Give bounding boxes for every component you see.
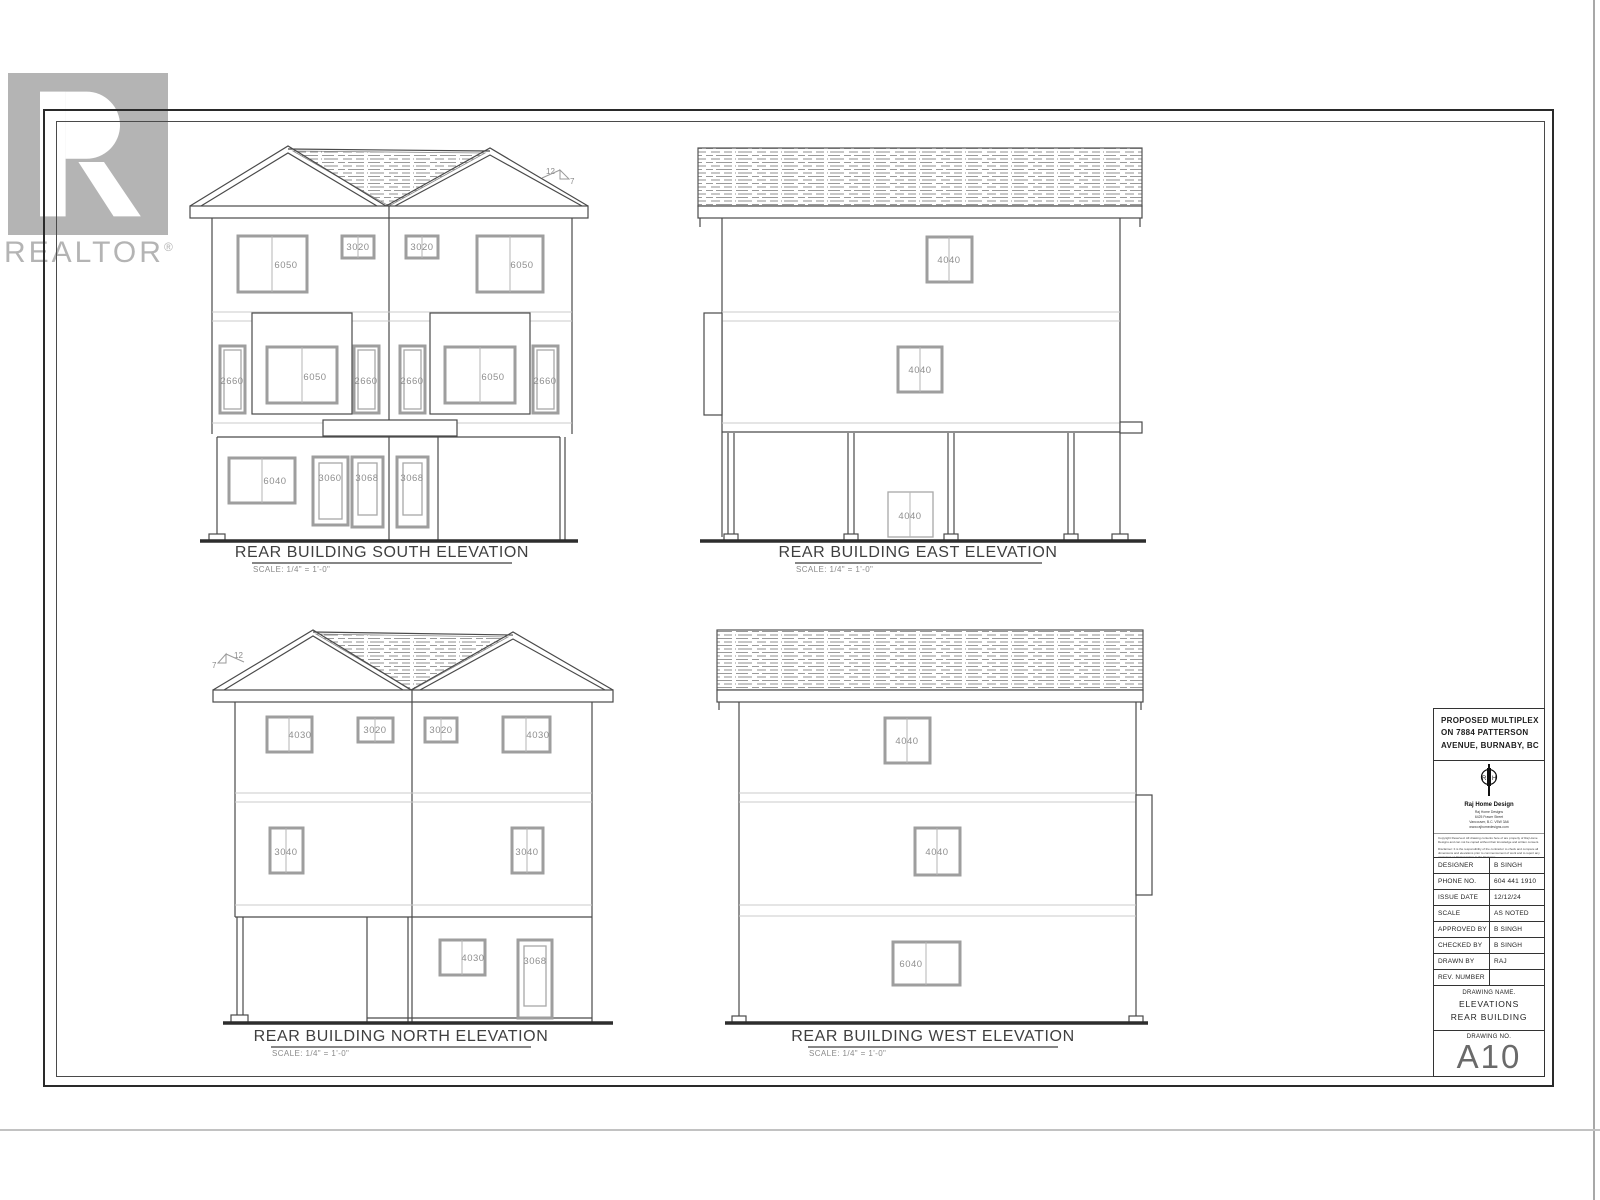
field-value: AS NOTED <box>1489 906 1544 921</box>
east-scale-note: SCALE: 1/4" = 1'-0" <box>796 565 873 574</box>
window-6050: 6050 <box>445 347 515 403</box>
south-elevation: 12 7 <box>190 146 588 574</box>
field-label: PHONE NO. <box>1434 874 1489 889</box>
window-6040: 6040 <box>893 942 960 985</box>
field-value <box>1489 970 1544 985</box>
window-label: 4040 <box>925 847 948 858</box>
project-line: PROPOSED MULTIPLEX <box>1441 715 1539 727</box>
window-label: 2660 <box>400 376 423 387</box>
drawing-name-line: ELEVATIONS <box>1434 999 1544 1009</box>
window-3020: 3020 <box>342 236 374 258</box>
field-row: DESIGNER B SINGH <box>1434 858 1544 874</box>
svg-text:H: H <box>1492 776 1496 782</box>
window-6050: 6050 <box>267 347 337 403</box>
north-title: REAR BUILDING NORTH ELEVATION <box>254 1028 549 1045</box>
fine-print: Copyright Reserved. All drawing contents… <box>1434 833 1544 858</box>
window-6050: 6050 <box>477 236 543 292</box>
field-row: REV. NUMBER <box>1434 970 1544 986</box>
drawing-number: A10 <box>1434 1040 1544 1075</box>
window-label: 3060 <box>318 473 341 484</box>
window-3020: 3020 <box>406 236 438 258</box>
window-label: 6040 <box>263 476 286 487</box>
window-6050: 6050 <box>238 236 307 292</box>
window-2660: 2660 <box>533 346 558 413</box>
west-title: REAR BUILDING WEST ELEVATION <box>791 1028 1075 1045</box>
south-title: REAR BUILDING SOUTH ELEVATION <box>235 544 529 561</box>
field-row: CHECKED BY B SINGH <box>1434 938 1544 954</box>
drawing-name-section: DRAWING NAME. ELEVATIONS REAR BUILDING <box>1434 986 1544 1031</box>
east-roof <box>698 148 1142 227</box>
field-row: DRAWN BY RAJ <box>1434 954 1544 970</box>
door-label: 3068 <box>523 956 546 967</box>
field-label: SCALE <box>1434 906 1489 921</box>
rim-band-extension <box>1120 422 1142 433</box>
window-label: 4040 <box>937 255 960 266</box>
window-4040: 4040 <box>927 237 972 282</box>
pitch-run: 7 <box>212 661 217 670</box>
window-label: 3040 <box>515 847 538 858</box>
window-label: 3020 <box>410 242 433 253</box>
svg-text:R: R <box>1482 776 1487 782</box>
window-label: 6050 <box>481 372 504 383</box>
window-3020: 3020 <box>425 718 457 742</box>
window-3020: 3020 <box>358 718 393 742</box>
window-label: 4030 <box>288 730 311 741</box>
window-4040: 4040 <box>898 347 942 392</box>
east-carport-posts <box>724 433 1128 541</box>
window-4040: 4040 <box>885 718 930 763</box>
window-label: 3040 <box>274 847 297 858</box>
west-scale-note: SCALE: 1/4" = 1'-0" <box>809 1049 886 1058</box>
window-label: 6050 <box>303 372 326 383</box>
drawing-name-line: REAR BUILDING <box>1434 1012 1544 1022</box>
east-bay-profile <box>704 313 722 415</box>
door-4040: 4040 <box>888 492 933 537</box>
field-row: SCALE AS NOTED <box>1434 906 1544 922</box>
west-elevation: 4040 4040 6040 REAR BUILDING WEST ELEVAT… <box>717 630 1152 1058</box>
field-label: CHECKED BY <box>1434 938 1489 953</box>
window-4030: 4030 <box>503 717 550 752</box>
window-label: 4040 <box>908 365 931 376</box>
east-title: REAR BUILDING EAST ELEVATION <box>778 544 1057 561</box>
title-block: PROPOSED MULTIPLEX ON 7884 PATTERSON AVE… <box>1433 708 1545 1077</box>
window-label: 3020 <box>346 242 369 253</box>
window-2660: 2660 <box>354 346 379 413</box>
door-label: 4040 <box>898 511 921 522</box>
company-info: Raj Home Designs 6425 Fraser Street Vanc… <box>1434 810 1544 830</box>
disclaimer-note: Disclaimer: It is the responsibility of … <box>1438 847 1540 858</box>
window-6040: 6040 <box>229 458 295 503</box>
door-label: 3068 <box>400 473 423 484</box>
north-roof <box>213 630 613 702</box>
field-label: REV. NUMBER <box>1434 970 1489 985</box>
door-3068: 3068 <box>352 457 383 527</box>
window-label: 3020 <box>363 725 386 736</box>
west-roof <box>717 630 1143 710</box>
field-value: 12/12/24 <box>1489 890 1544 905</box>
field-value: 604 441 1910 <box>1489 874 1544 889</box>
project-address: PROPOSED MULTIPLEX ON 7884 PATTERSON AVE… <box>1434 709 1544 761</box>
window-2660: 2660 <box>220 346 245 413</box>
north-pitch-indicator: 12 7 <box>212 651 244 670</box>
field-row: APPROVED BY B SINGH <box>1434 922 1544 938</box>
north-elevation: 12 7 <box>212 630 613 1058</box>
door-3068: 3068 <box>518 940 552 1018</box>
company-section: R H Raj Home Design Raj Home Designs 642… <box>1434 761 1544 858</box>
window-4040: 4040 <box>915 828 960 875</box>
elevation-drawings: 12 7 <box>0 0 1600 1200</box>
window-3060: 3060 <box>313 457 348 525</box>
window-label: 3020 <box>429 725 452 736</box>
window-4030: 4030 <box>440 940 485 975</box>
window-label: 2660 <box>533 376 556 387</box>
field-label: APPROVED BY <box>1434 922 1489 937</box>
window-label: 4030 <box>526 730 549 741</box>
north-scale-note: SCALE: 1/4" = 1'-0" <box>272 1049 349 1058</box>
field-value: B SINGH <box>1489 938 1544 953</box>
window-label: 4030 <box>461 953 484 964</box>
drawing-number-section: DRAWING NO. A10 <box>1434 1031 1544 1077</box>
field-value: RAJ <box>1489 954 1544 969</box>
window-label: 4040 <box>895 736 918 747</box>
south-scale-note: SCALE: 1/4" = 1'-0" <box>253 565 330 574</box>
field-label: ISSUE DATE <box>1434 890 1489 905</box>
pitch-run: 7 <box>570 177 575 186</box>
company-info-line: www.rajhomedesigns.com <box>1434 825 1544 830</box>
copyright-note: Copyright Reserved. All drawing contents… <box>1438 836 1540 844</box>
window-label: 6050 <box>274 260 297 271</box>
window-2660: 2660 <box>400 346 425 413</box>
project-line: ON 7884 PATTERSON <box>1441 727 1539 739</box>
door-label: 3068 <box>355 473 378 484</box>
company-name: Raj Home Design <box>1434 802 1544 808</box>
window-label: 6040 <box>899 959 922 970</box>
east-elevation: 4040 4040 4040 REAR BUILDING EAST ELEVAT… <box>698 148 1146 574</box>
field-value: B SINGH <box>1489 858 1544 873</box>
window-label: 6050 <box>510 260 533 271</box>
window-3040: 3040 <box>270 828 303 873</box>
field-label: DRAWN BY <box>1434 954 1489 969</box>
west-bay-profile <box>1136 795 1152 895</box>
window-4030: 4030 <box>267 717 312 752</box>
window-3040: 3040 <box>512 828 543 873</box>
project-line: AVENUE, BURNABY, BC <box>1441 740 1539 752</box>
raj-home-design-logo-icon: R H <box>1477 764 1501 796</box>
field-label: DESIGNER <box>1434 858 1489 873</box>
window-label: 2660 <box>220 376 243 387</box>
field-row: ISSUE DATE 12/12/24 <box>1434 890 1544 906</box>
drawing-name-label: DRAWING NAME. <box>1434 990 1544 996</box>
field-row: PHONE NO. 604 441 1910 <box>1434 874 1544 890</box>
window-label: 2660 <box>354 376 377 387</box>
drawing-sheet: REALTOR® 12 <box>0 0 1600 1200</box>
south-pitch-indicator: 12 7 <box>542 167 575 186</box>
door-3068: 3068 <box>397 457 428 527</box>
south-entry-canopy <box>323 420 457 436</box>
field-value: B SINGH <box>1489 922 1544 937</box>
